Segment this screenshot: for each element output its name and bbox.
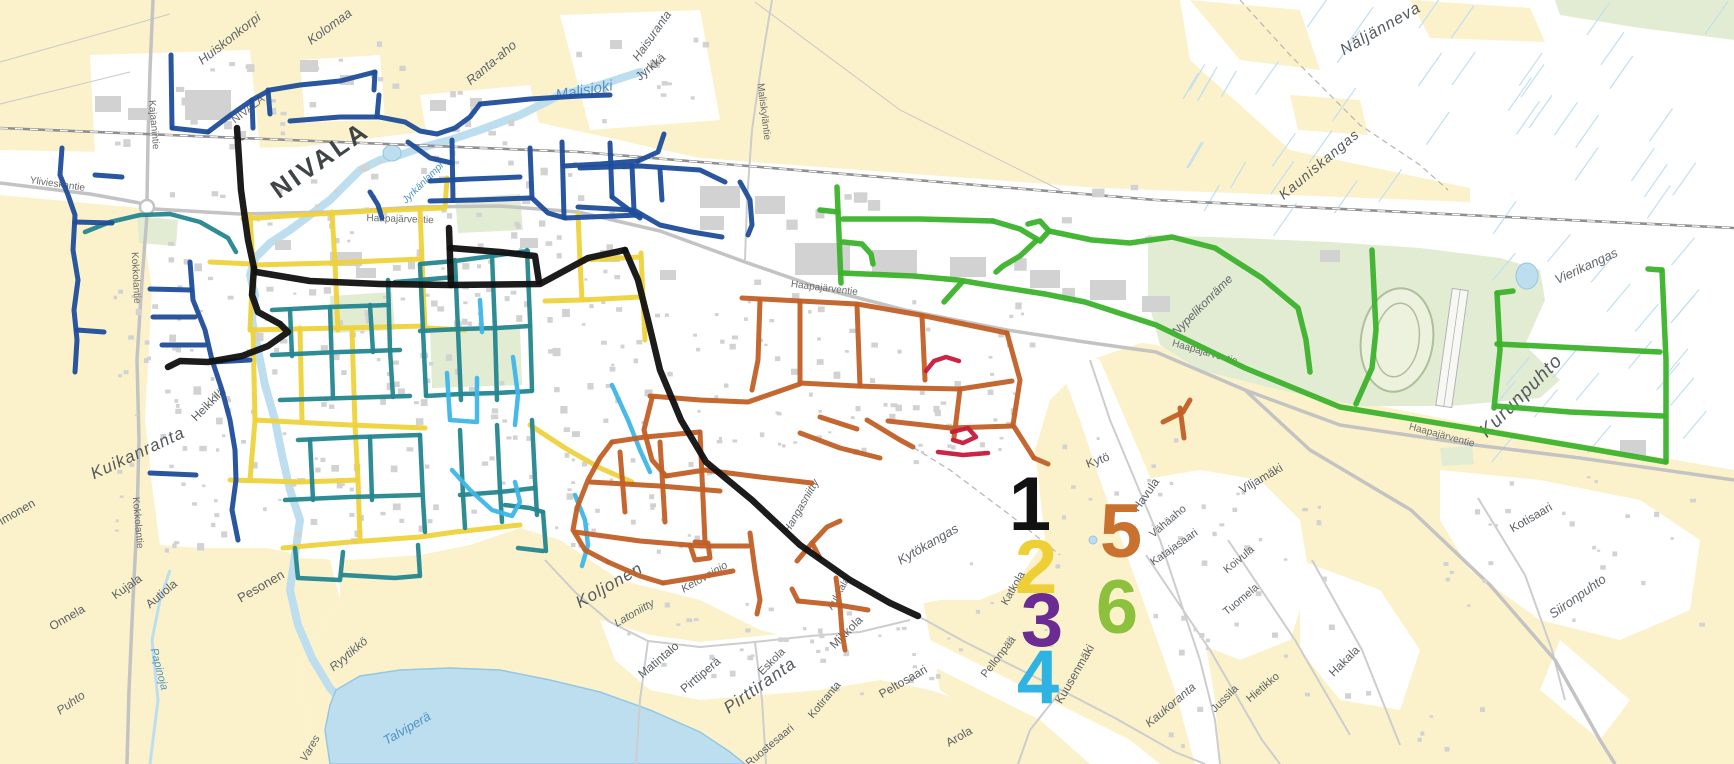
pond: [1516, 263, 1538, 289]
route-number-5: 5: [1100, 489, 1142, 574]
nivala-route-map: NIVALANIVALAHuiskonkorpiKolomaaRanta-aho…: [0, 0, 1734, 764]
route-number-4: 4: [1017, 635, 1059, 720]
route-number-6: 6: [1096, 565, 1138, 650]
pond: [1089, 536, 1097, 544]
pond: [383, 145, 401, 161]
roundabout: [140, 200, 154, 214]
map-canvas[interactable]: NIVALANIVALAHuiskonkorpiKolomaaRanta-aho…: [0, 0, 1734, 764]
